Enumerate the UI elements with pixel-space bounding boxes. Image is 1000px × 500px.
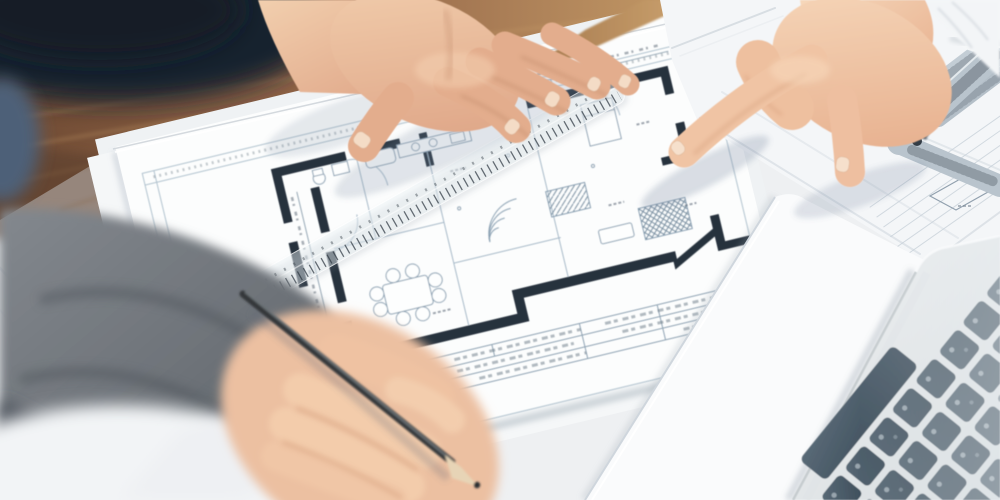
- pencil-lead: [474, 482, 480, 488]
- photo-scene: Overhead close-up photo of architects wo…: [0, 0, 1000, 500]
- photo-canvas: [0, 0, 1000, 500]
